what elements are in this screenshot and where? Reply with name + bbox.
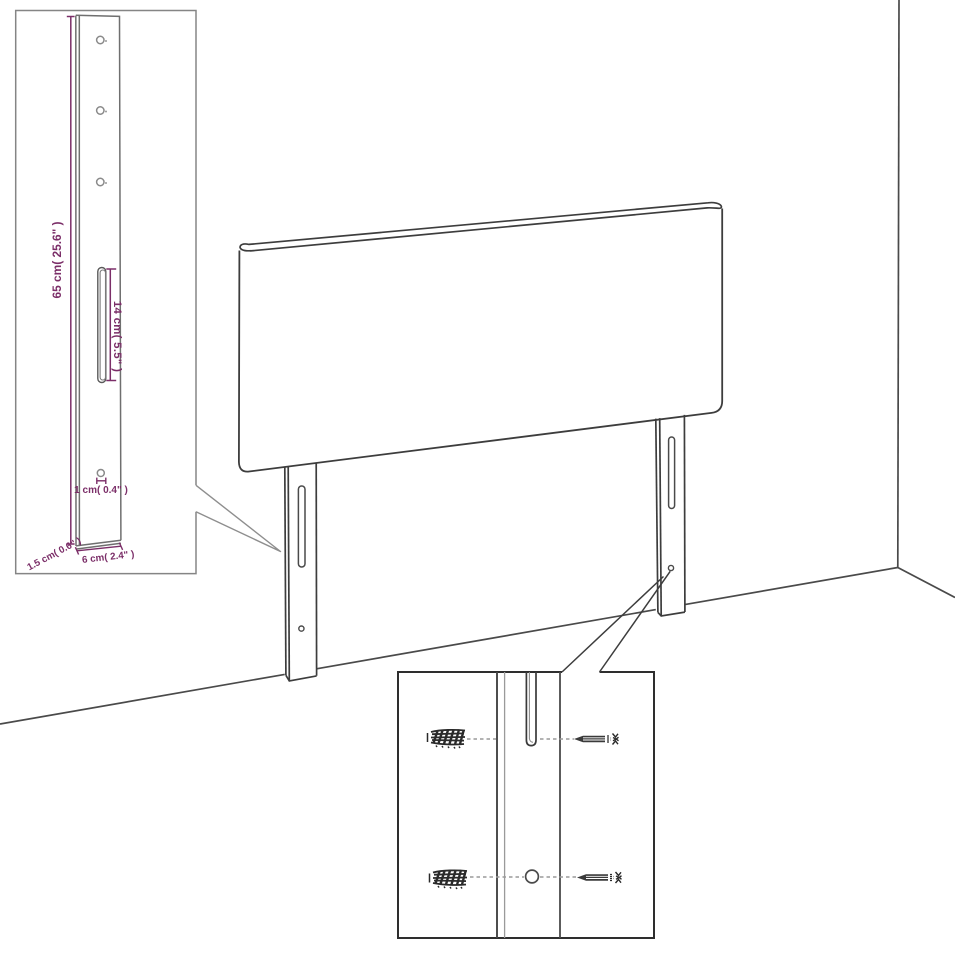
- svg-text:1.5 cm( 0.6" ): 1.5 cm( 0.6" ): [25, 535, 83, 573]
- svg-text:6 cm( 2.4" ): 6 cm( 2.4" ): [81, 549, 134, 566]
- svg-text:14 cm( 5.5" ): 14 cm( 5.5" ): [111, 301, 123, 372]
- svg-text:1 cm( 0.4" ): 1 cm( 0.4" ): [74, 485, 128, 496]
- svg-text:65 cm( 25.6" ): 65 cm( 25.6" ): [50, 221, 64, 298]
